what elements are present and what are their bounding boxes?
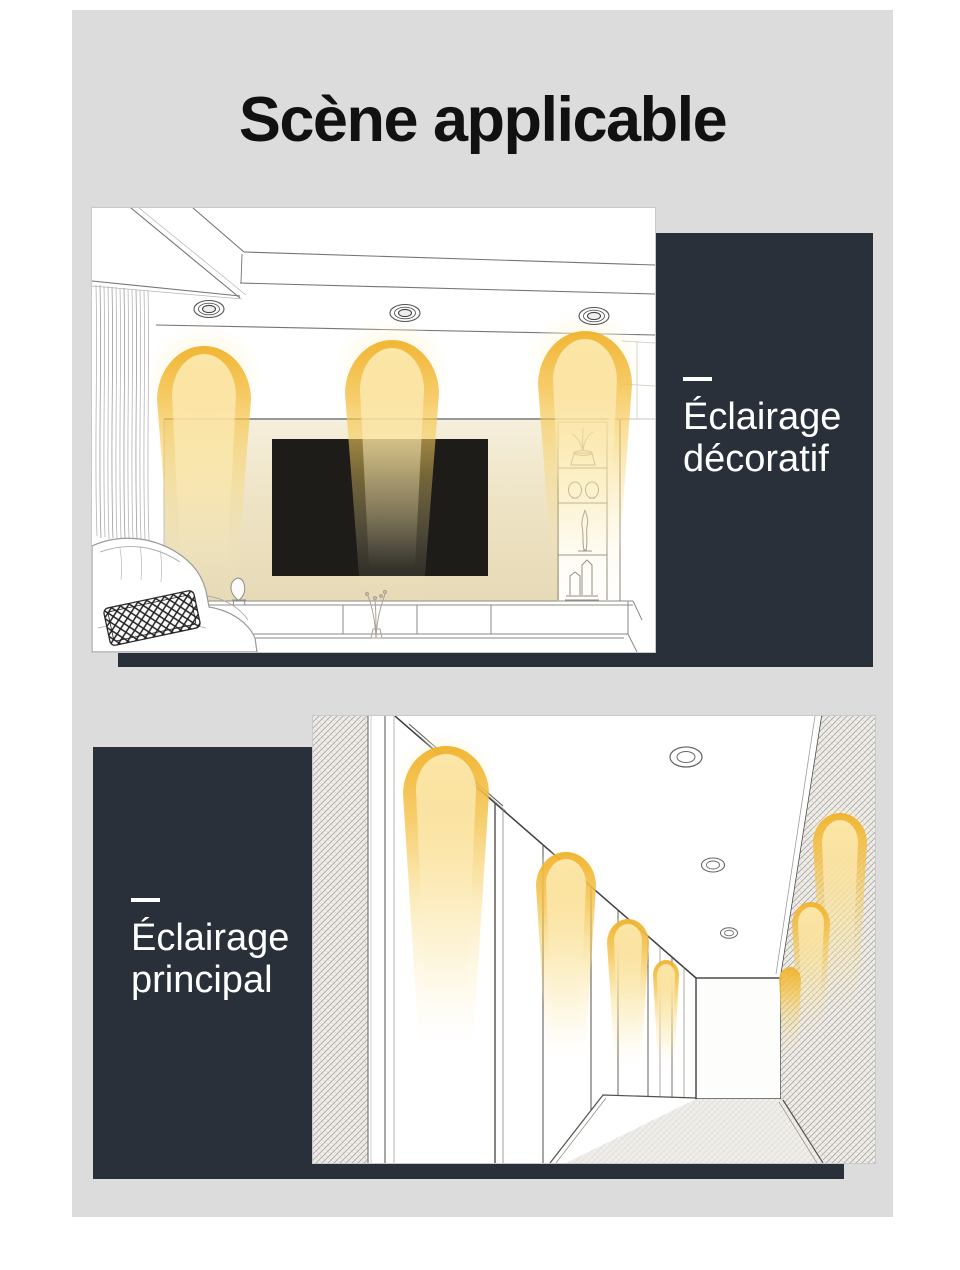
label-line-2: décoratif [683,438,841,480]
section-main-lighting: Éclairage principal [72,710,893,1217]
hallway-sketch [313,716,875,1163]
product-scene-page: Scène applicable [0,0,960,1270]
gray-canvas: Scène applicable [72,10,893,1217]
label-main: Éclairage principal [131,898,289,1001]
living-room-sketch [92,208,655,652]
dash-mark [131,898,160,902]
light-cones [157,331,632,616]
section-decorative-lighting: Éclairage décoratif [72,10,893,710]
living-room-illustration [92,208,655,652]
label-line-2: principal [131,959,289,1001]
hallway-illustration [313,716,875,1163]
end-wall [696,978,781,1099]
label-line-1: Éclairage [683,396,841,438]
dash-mark [683,377,712,381]
left-textured-wall [313,716,371,1163]
label-line-1: Éclairage [131,917,289,959]
label-decorative: Éclairage décoratif [683,377,841,480]
